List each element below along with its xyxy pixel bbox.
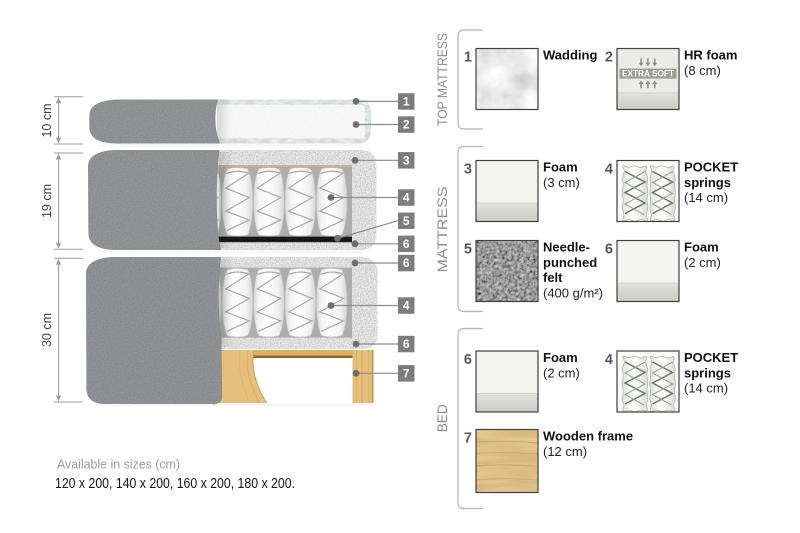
svg-text:4: 4 — [605, 162, 613, 178]
svg-text:5: 5 — [464, 242, 472, 258]
svg-text:MATTRESS: MATTRESS — [434, 187, 450, 273]
svg-text:springs: springs — [684, 365, 731, 380]
svg-text:3: 3 — [464, 162, 472, 178]
svg-text:Needle-: Needle- — [543, 240, 590, 255]
svg-text:(14 cm): (14 cm) — [684, 190, 728, 205]
svg-text:4: 4 — [605, 352, 613, 368]
svg-text:1: 1 — [464, 50, 472, 66]
svg-text:EXTRA SOFT: EXTRA SOFT — [622, 68, 674, 79]
svg-text:punched: punched — [543, 255, 597, 270]
svg-text:6: 6 — [403, 256, 410, 270]
svg-text:Available in sizes (cm): Available in sizes (cm) — [57, 456, 180, 471]
svg-text:7: 7 — [464, 431, 472, 447]
svg-text:30 cm: 30 cm — [40, 313, 54, 347]
svg-text:6: 6 — [403, 237, 410, 251]
svg-text:HR foam: HR foam — [684, 48, 737, 63]
svg-text:4: 4 — [403, 191, 410, 205]
svg-text:2: 2 — [403, 118, 410, 132]
svg-text:Foam: Foam — [543, 160, 578, 175]
svg-text:7: 7 — [403, 367, 410, 381]
svg-text:Wooden frame: Wooden frame — [543, 429, 633, 444]
svg-text:TOP MATTRESS: TOP MATTRESS — [434, 33, 450, 126]
svg-text:(2 cm): (2 cm) — [543, 365, 580, 380]
svg-text:BED: BED — [434, 404, 450, 432]
svg-text:POCKET: POCKET — [684, 350, 738, 365]
svg-text:springs: springs — [684, 175, 731, 190]
svg-text:19 cm: 19 cm — [40, 184, 54, 218]
svg-text:6: 6 — [605, 242, 613, 258]
svg-text:10 cm: 10 cm — [40, 103, 54, 137]
svg-text:Foam: Foam — [684, 240, 719, 255]
svg-text:Foam: Foam — [543, 350, 578, 365]
svg-text:(2 cm): (2 cm) — [684, 255, 721, 270]
svg-text:4: 4 — [403, 299, 410, 313]
svg-text:6: 6 — [464, 352, 472, 368]
svg-text:Wadding: Wadding — [543, 48, 597, 63]
svg-text:felt: felt — [543, 270, 563, 285]
svg-text:3: 3 — [403, 154, 410, 168]
svg-text:(14 cm): (14 cm) — [684, 381, 728, 396]
svg-text:(8 cm): (8 cm) — [684, 63, 721, 78]
svg-text:120 x 200, 140 x 200, 160 x 20: 120 x 200, 140 x 200, 160 x 200, 180 x 2… — [55, 476, 295, 492]
svg-text:6: 6 — [403, 337, 410, 351]
svg-text:2: 2 — [605, 50, 613, 66]
svg-text:1: 1 — [403, 95, 410, 109]
svg-text:POCKET: POCKET — [684, 160, 738, 175]
svg-text:5: 5 — [403, 214, 410, 228]
svg-text:(3 cm): (3 cm) — [543, 175, 580, 190]
svg-text:(400 g/m²): (400 g/m²) — [543, 285, 603, 300]
svg-text:(12 cm): (12 cm) — [543, 444, 587, 459]
